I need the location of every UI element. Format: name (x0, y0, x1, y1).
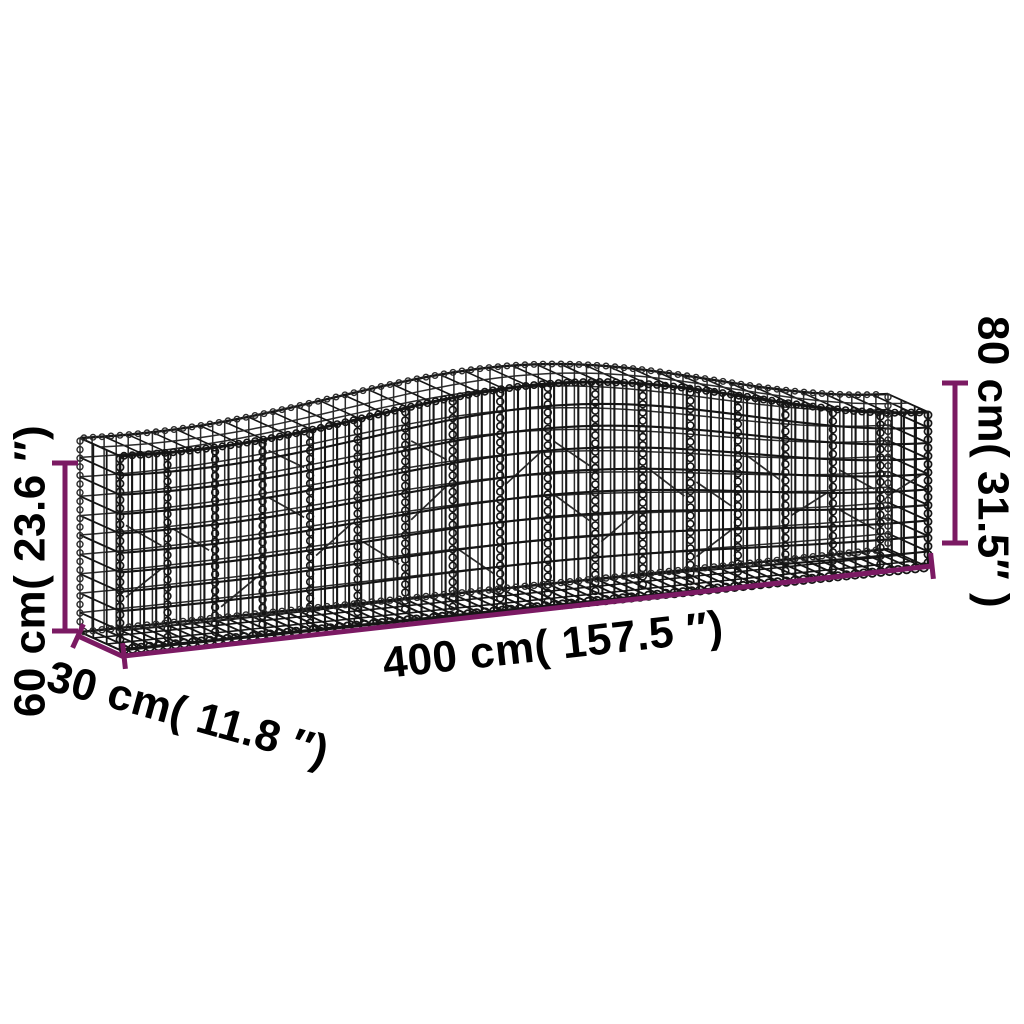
basket-back-wall (80, 364, 888, 632)
gabion-basket-illustration: 60 cm( 23.6 ″) 80 cm( 31.5″ ) 400 cm( 15… (0, 0, 1024, 1024)
height-end-label: 60 cm( 23.6 ″) (6, 425, 55, 717)
depth-label: 30 cm( 11.8 ″) (42, 652, 334, 777)
dimension-diagram: 60 cm( 23.6 ″) 80 cm( 31.5″ ) 400 cm( 15… (0, 0, 1024, 1024)
height-peak-label: 80 cm( 31.5″ ) (969, 316, 1018, 608)
length-label: 400 cm( 157.5 ″) (380, 602, 725, 688)
